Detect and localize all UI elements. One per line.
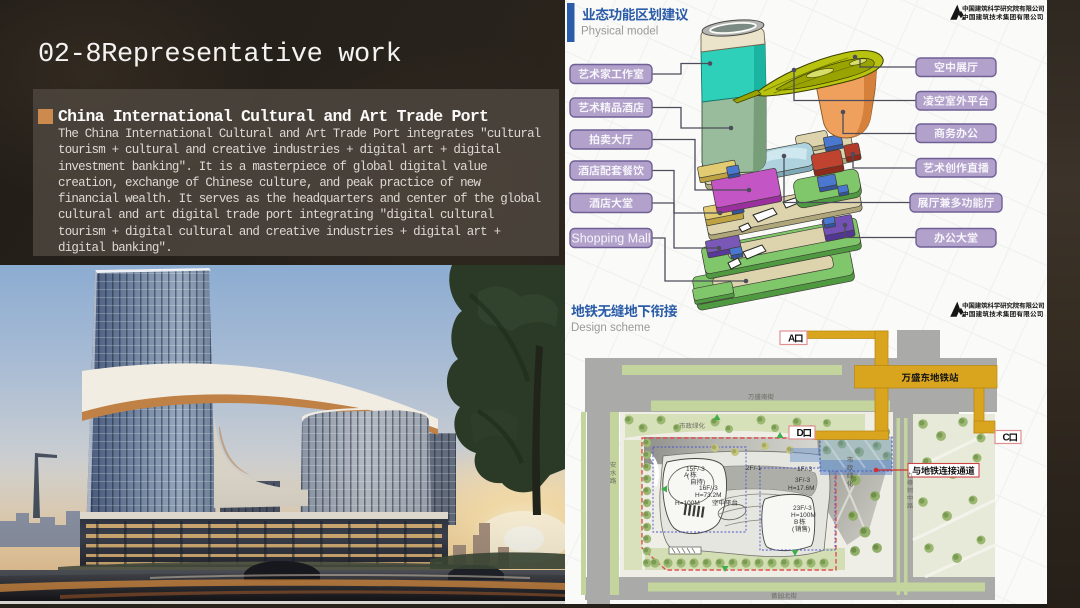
svg-text:A: A: [788, 334, 795, 345]
svg-text:A: A: [684, 472, 689, 479]
svg-text:H=100M: H=100M: [675, 500, 700, 507]
svg-text:Design scheme: Design scheme: [571, 322, 650, 334]
svg-text:H=100M: H=100M: [791, 512, 816, 519]
svg-text:D: D: [797, 428, 804, 439]
svg-text:Physical model: Physical model: [581, 26, 658, 38]
svg-text:Shopping Mall: Shopping Mall: [571, 232, 650, 246]
svg-text:23F/-3: 23F/-3: [793, 505, 812, 512]
svg-text:16F/-3: 16F/-3: [699, 485, 718, 492]
svg-text:C: C: [1003, 433, 1010, 444]
svg-text:H=17.6M: H=17.6M: [788, 485, 815, 492]
svg-text:): ): [808, 526, 810, 533]
svg-text:1F/-3: 1F/-3: [797, 466, 813, 473]
svg-text:15F/-3: 15F/-3: [686, 466, 705, 473]
svg-text:H=73.2M: H=73.2M: [695, 492, 722, 499]
svg-text:B: B: [794, 519, 798, 526]
svg-text:3F/-3: 3F/-3: [795, 477, 811, 484]
svg-text:2F/-1: 2F/-1: [746, 465, 762, 472]
